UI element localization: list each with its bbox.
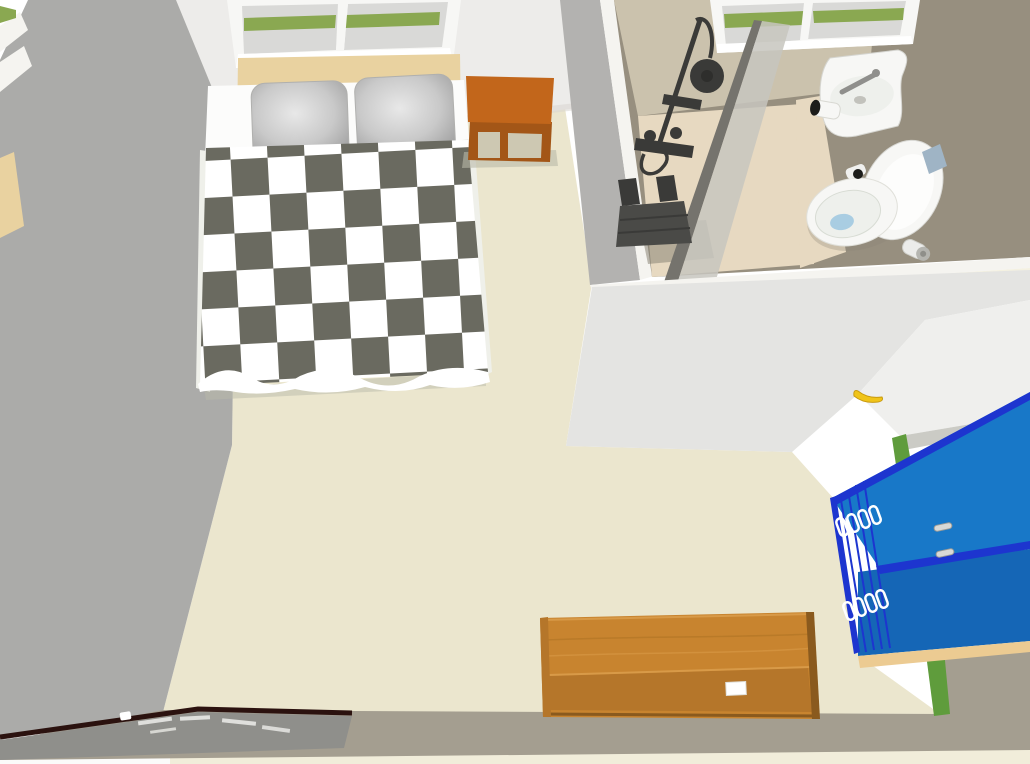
sink-faucet-head — [872, 69, 880, 77]
desk[interactable] — [540, 612, 820, 719]
seat-slab — [616, 201, 692, 247]
mixer-knob-left — [644, 130, 656, 142]
piano-white-key — [119, 711, 131, 721]
nightstand-top — [466, 76, 554, 124]
desk-paper-sheet[interactable] — [726, 681, 747, 695]
nightstand[interactable] — [462, 76, 558, 168]
adjacent-area — [566, 270, 1030, 452]
mixer-knob-right — [670, 127, 682, 139]
nightstand-leg-gap-1 — [478, 132, 500, 158]
flush-knob — [853, 169, 863, 179]
desk-bottom-edge — [544, 714, 818, 716]
duvet-checkered[interactable] — [200, 140, 488, 386]
room-3d-viewport — [0, 0, 1030, 764]
sink-drain — [854, 96, 866, 104]
bathroom-window[interactable] — [710, 0, 920, 53]
bed[interactable] — [196, 73, 492, 400]
nightstand-leg-gap-2 — [508, 133, 542, 158]
sink[interactable] — [820, 50, 907, 137]
bathroom — [590, 0, 1030, 302]
shower-head-center — [701, 70, 713, 82]
